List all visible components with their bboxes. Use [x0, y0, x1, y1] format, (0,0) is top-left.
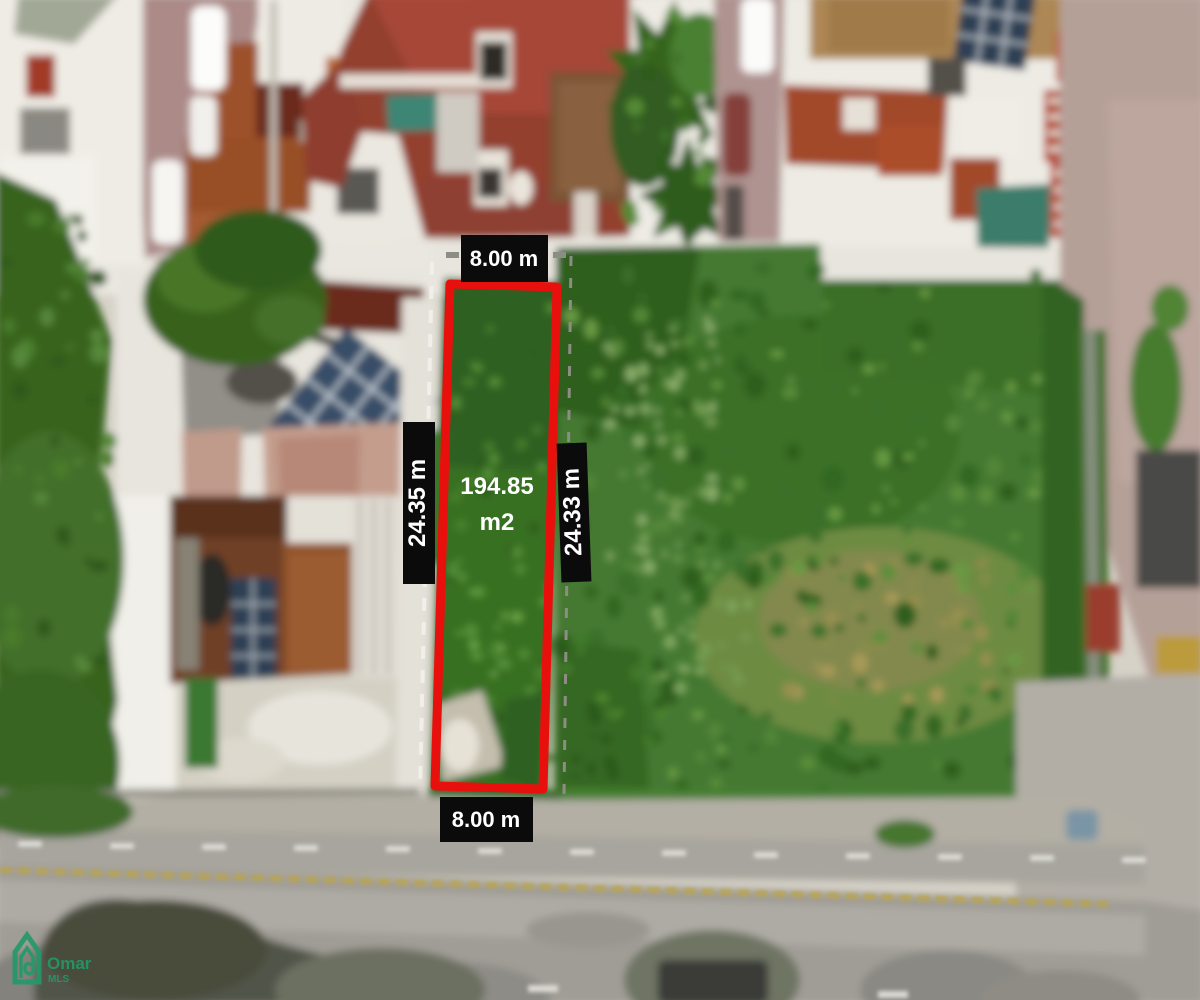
svg-text:24.33 m: 24.33 m	[557, 468, 587, 557]
svg-text:8.00 m: 8.00 m	[452, 807, 521, 832]
svg-text:MLS: MLS	[48, 974, 69, 985]
svg-text:8.00 m: 8.00 m	[470, 246, 539, 271]
svg-text:m2: m2	[480, 509, 515, 536]
svg-text:194.85: 194.85	[460, 473, 533, 500]
svg-text:24.35 m: 24.35 m	[404, 459, 431, 547]
svg-text:Omar: Omar	[47, 954, 92, 973]
